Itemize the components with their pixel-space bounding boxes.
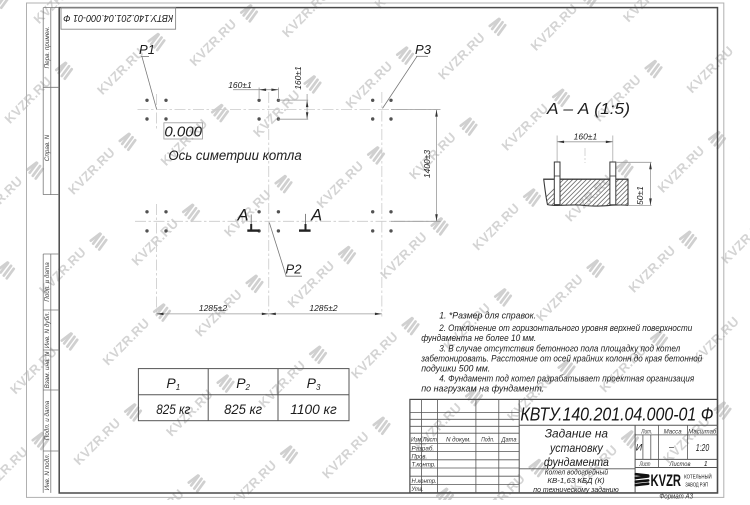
svg-text:А – А (1:5): А – А (1:5) (546, 101, 630, 118)
svg-text:Котел водогрейный: Котел водогрейный (545, 467, 608, 476)
svg-text:КОТЕЛЬНЫЙ: КОТЕЛЬНЫЙ (684, 472, 712, 480)
svg-text:50±1: 50±1 (635, 186, 645, 205)
svg-text:Справ. N: Справ. N (44, 134, 51, 161)
svg-text:Разраб.: Разраб. (412, 444, 435, 452)
svg-text:1. *Размер для справок.: 1. *Размер для справок. (439, 311, 536, 321)
svg-text:160±1: 160±1 (574, 132, 598, 142)
svg-text:Изм.Лист: Изм.Лист (411, 437, 438, 444)
svg-text:установку: установку (549, 441, 604, 455)
svg-text:Задание на: Задание на (545, 426, 609, 440)
svg-text:1: 1 (704, 461, 708, 468)
svg-text:825 кг: 825 кг (224, 402, 262, 417)
svg-text:Взам. инв. N: Взам. инв. N (44, 351, 51, 388)
svg-text:ЗАВОД РЭП: ЗАВОД РЭП (685, 482, 708, 488)
svg-text:160±1: 160±1 (293, 66, 303, 90)
svg-text:160±1: 160±1 (228, 80, 252, 90)
svg-text:N докум.: N докум. (446, 436, 471, 444)
svg-text:Лист: Лист (639, 461, 651, 468)
svg-text:–: – (668, 442, 675, 452)
svg-text:фундамента не более 10 мм.: фундамента не более 10 мм. (421, 333, 536, 343)
svg-text:Формат А3: Формат А3 (659, 492, 693, 501)
svg-text:1285±2: 1285±2 (199, 303, 228, 313)
svg-text:Масштаб: Масштаб (688, 427, 716, 435)
svg-text:1:20: 1:20 (696, 443, 710, 454)
svg-text:A: A (310, 207, 322, 225)
svg-text:P1: P1 (139, 42, 155, 57)
svg-text:подушки 500 мм.: подушки 500 мм. (421, 363, 490, 373)
svg-text:КВТУ.140.201.04.000-01 Ф: КВТУ.140.201.04.000-01 Ф (63, 12, 173, 24)
svg-text:Подп. и дата: Подп. и дата (43, 400, 51, 440)
svg-text:Н.контр.: Н.контр. (412, 478, 437, 485)
svg-text:по техническому заданию: по техническому заданию (533, 485, 619, 494)
svg-text:4. Фундамент под котел разраб: 4. Фундамент под котел разрабатывает про… (439, 373, 694, 383)
svg-text:КВТУ.140.201.04.000-01 Ф: КВТУ.140.201.04.000-01 Ф (520, 405, 713, 425)
svg-text:Масса: Масса (664, 428, 682, 435)
svg-text:Пров.: Пров. (412, 454, 428, 461)
svg-text:P2: P2 (286, 262, 303, 277)
svg-text:Инв. N подл.: Инв. N подл. (43, 454, 51, 491)
svg-text:Лит.: Лит. (641, 428, 653, 435)
svg-text:1285±2: 1285±2 (309, 303, 338, 313)
svg-text:забетонировать. Расстояние от: забетонировать. Расстояние от осей крайн… (420, 353, 702, 363)
svg-text:1400±3: 1400±3 (422, 150, 432, 179)
svg-text:Подп.: Подп. (481, 436, 494, 444)
svg-text:KVZR: KVZR (651, 471, 682, 490)
svg-text:Листов: Листов (669, 461, 691, 468)
svg-text:Инв. N дубл.: Инв. N дубл. (43, 312, 51, 348)
svg-text:Подп. и дата: Подп. и дата (43, 262, 51, 302)
svg-text:825 кг: 825 кг (156, 402, 190, 417)
svg-text:P3: P3 (415, 42, 432, 57)
svg-text:Т.контр.: Т.контр. (412, 462, 436, 469)
svg-text:1100 кг: 1100 кг (290, 402, 337, 417)
svg-text:И: И (636, 443, 643, 453)
svg-text:3. В случае отсутствия бетонн: 3. В случае отсутствия бетонного пола пл… (439, 343, 681, 353)
svg-text:по нагрузкам на фундамент.: по нагрузкам на фундамент. (421, 383, 544, 393)
svg-text:2. Отклонение от горизонтальн: 2. Отклонение от горизонтального уровня … (438, 323, 692, 333)
svg-text:Перв. примен.: Перв. примен. (44, 27, 51, 69)
svg-text:Дата: Дата (501, 437, 517, 444)
svg-text:Утв.: Утв. (411, 486, 424, 493)
svg-text:0.000: 0.000 (164, 123, 202, 140)
svg-text:A: A (236, 207, 248, 225)
svg-text:Ось симетрии котла: Ось симетрии котла (168, 148, 302, 163)
